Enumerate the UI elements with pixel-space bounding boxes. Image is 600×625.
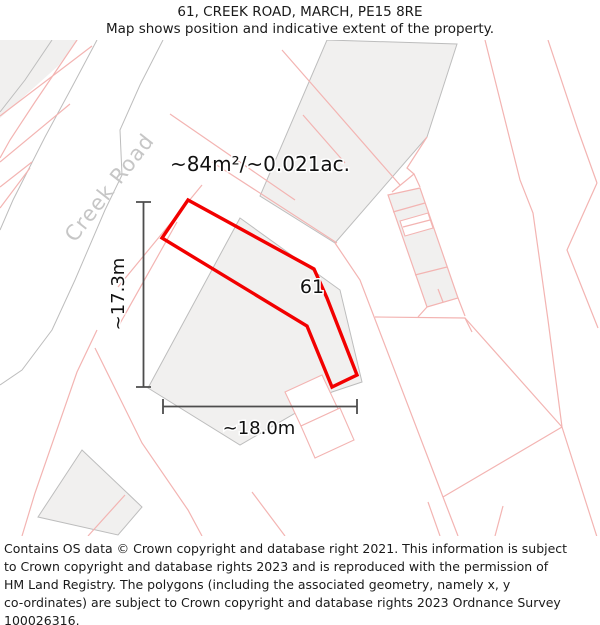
right-road-branch-2	[428, 502, 440, 536]
lane-diagonal	[465, 318, 562, 427]
right-road-line-2	[548, 40, 597, 183]
verge-divider-2	[0, 104, 70, 162]
right-road-bend	[443, 427, 562, 497]
copyright-footer: Contains OS data © Crown copyright and d…	[0, 537, 600, 625]
notch-tail	[414, 174, 420, 187]
map-header: 61, CREEK ROAD, MARCH, PE15 8RE Map show…	[0, 0, 600, 40]
map-canvas: Creek Road ~84m²/~0.021ac. 61 ~17.3m ~18…	[0, 40, 600, 536]
ladder-tail-2	[458, 298, 465, 316]
dim-vertical-label: ~17.3m	[108, 258, 129, 331]
right-road-line-3	[567, 183, 598, 328]
copyright-line: HM Land Registry. The polygons (includin…	[4, 576, 600, 594]
bottom-line-4	[252, 492, 285, 536]
bottom-line-5	[495, 506, 503, 536]
copyright-line: Contains OS data © Crown copyright and d…	[4, 540, 600, 558]
map-svg: Creek Road ~84m²/~0.021ac. 61 ~17.3m ~18…	[0, 40, 600, 536]
copyright-line: to Crown copyright and database rights 2…	[4, 558, 600, 576]
plot-number-label: 61	[300, 276, 324, 298]
area-label: ~84m²/~0.021ac.	[170, 152, 350, 176]
ladder-tail-1	[418, 307, 427, 317]
parcel-bottomleft-building	[38, 450, 142, 535]
copyright-line: 100026316.	[4, 612, 600, 625]
page-title: 61, CREEK ROAD, MARCH, PE15 8RE	[0, 0, 600, 21]
verge-divider-3	[0, 162, 32, 187]
dim-horizontal-label: ~18.0m	[223, 418, 296, 439]
copyright-line: co-ordinates) are subject to Crown copyr…	[4, 594, 600, 612]
background-parcel-fills	[0, 40, 458, 535]
parcel-ladder-strip	[388, 188, 458, 307]
dim-vertical-line	[136, 202, 151, 387]
right-road-line-1	[485, 40, 597, 536]
page: 61, CREEK ROAD, MARCH, PE15 8RE Map show…	[0, 0, 600, 625]
verge-strip-line-2	[0, 168, 30, 208]
page-subtitle: Map shows position and indicative extent…	[0, 21, 600, 38]
right-road-branch-1	[443, 497, 458, 536]
lane-cross-line	[375, 317, 472, 332]
